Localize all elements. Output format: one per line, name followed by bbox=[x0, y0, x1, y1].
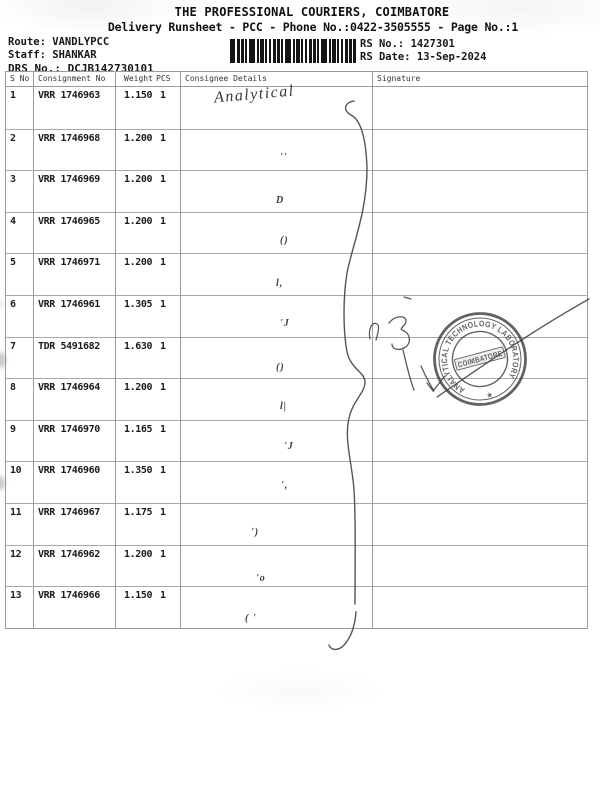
rs-date-label: RS Date: bbox=[360, 51, 411, 63]
cell-signature bbox=[373, 87, 587, 129]
cell-weight-pcs: 1.175 1 bbox=[116, 504, 181, 545]
column-header-pcs: PCS bbox=[154, 74, 170, 86]
cell-consignment-no: VRR 1746968 bbox=[34, 130, 116, 171]
cell-pcs: 1 bbox=[157, 590, 166, 628]
handwritten-ditto-mark: () bbox=[280, 235, 289, 246]
cell-pcs: 1 bbox=[157, 424, 166, 462]
page-title: THE PROFESSIONAL COURIERS, COIMBATORE bbox=[0, 5, 600, 19]
cell-sno: 7 bbox=[6, 338, 34, 379]
table-row: 1 VRR 1746963 1.150 1 bbox=[6, 87, 587, 129]
cell-signature bbox=[373, 254, 587, 295]
table-row: 9 VRR 1746970 1.165 1 'J bbox=[6, 420, 587, 462]
cell-consignment-no: VRR 1746971 bbox=[34, 254, 116, 295]
cell-pcs: 1 bbox=[157, 257, 166, 295]
cell-consignment-no: VRR 1746961 bbox=[34, 296, 116, 337]
rs-date-value: 13-Sep-2024 bbox=[417, 51, 487, 63]
cell-pcs: 1 bbox=[157, 382, 166, 420]
cell-signature bbox=[373, 421, 587, 462]
cell-weight: 1.630 bbox=[120, 341, 157, 379]
cell-consignee-details: 'J bbox=[181, 421, 373, 462]
cell-consignee-details: D bbox=[181, 171, 373, 212]
cell-signature bbox=[373, 296, 587, 337]
cell-consignee-details: 'o bbox=[181, 546, 373, 587]
cell-consignment-no: VRR 1746962 bbox=[34, 546, 116, 587]
cell-weight-pcs: 1.200 1 bbox=[116, 130, 181, 171]
handwritten-ditto-mark: 'J bbox=[284, 441, 294, 452]
cell-consignee-details: l| bbox=[181, 379, 373, 420]
rs-no-label: RS No.: bbox=[360, 38, 404, 50]
cell-weight: 1.175 bbox=[120, 507, 157, 545]
page-subtitle: Delivery Runsheet - PCC - Phone No.:0422… bbox=[0, 20, 600, 34]
cell-consignment-no: VRR 1746964 bbox=[34, 379, 116, 420]
route-label: Route: bbox=[8, 36, 46, 48]
cell-weight-pcs: 1.200 1 bbox=[116, 213, 181, 254]
staff-line: Staff: SHANKAR bbox=[8, 49, 154, 62]
cell-consignee-details: '' bbox=[181, 130, 373, 171]
cell-consignee-details: l, bbox=[181, 254, 373, 295]
cell-weight-pcs: 1.350 1 bbox=[116, 462, 181, 503]
cell-pcs: 1 bbox=[157, 465, 166, 503]
cell-signature bbox=[373, 338, 587, 379]
table-row: 8 VRR 1746964 1.200 1 l| bbox=[6, 378, 587, 420]
cell-pcs: 1 bbox=[157, 133, 166, 171]
barcode-icon bbox=[230, 39, 356, 63]
cell-pcs: 1 bbox=[157, 549, 166, 587]
cell-pcs: 1 bbox=[157, 174, 166, 212]
staff-label: Staff: bbox=[8, 49, 46, 61]
cell-consignee-details: ') bbox=[181, 504, 373, 545]
table-row: 12 VRR 1746962 1.200 1 'o bbox=[6, 545, 587, 587]
cell-weight: 1.350 bbox=[120, 465, 157, 503]
cell-sno: 13 bbox=[6, 587, 34, 628]
cell-weight: 1.200 bbox=[120, 382, 157, 420]
table-rows: 1 VRR 1746963 1.150 1 2 VRR 1746968 1.20… bbox=[6, 87, 587, 628]
handwritten-ditto-mark: 'J bbox=[280, 318, 290, 329]
route-value: VANDLYPCC bbox=[52, 36, 109, 48]
scanned-delivery-runsheet: THE PROFESSIONAL COURIERS, COIMBATORE De… bbox=[0, 0, 600, 800]
handwritten-ditto-mark: ') bbox=[251, 527, 259, 538]
cell-weight: 1.200 bbox=[120, 257, 157, 295]
cell-weight-pcs: 1.200 1 bbox=[116, 171, 181, 212]
cell-sno: 9 bbox=[6, 421, 34, 462]
cell-consignment-no: VRR 1746960 bbox=[34, 462, 116, 503]
cell-consignee-details: 'J bbox=[181, 296, 373, 337]
cell-weight-pcs: 1.305 1 bbox=[116, 296, 181, 337]
cell-weight: 1.200 bbox=[120, 549, 157, 587]
cell-weight: 1.150 bbox=[120, 90, 157, 129]
cell-sno: 12 bbox=[6, 546, 34, 587]
staff-value: SHANKAR bbox=[52, 49, 96, 61]
cell-pcs: 1 bbox=[157, 90, 166, 129]
cell-signature bbox=[373, 213, 587, 254]
scan-smudge bbox=[0, 300, 3, 308]
cell-weight: 1.200 bbox=[120, 174, 157, 212]
cell-weight-pcs: 1.200 1 bbox=[116, 254, 181, 295]
cell-signature bbox=[373, 379, 587, 420]
handwritten-ditto-mark: l, bbox=[276, 278, 283, 289]
cell-consignment-no: VRR 1746963 bbox=[34, 87, 116, 129]
cell-weight: 1.305 bbox=[120, 299, 157, 337]
cell-sno: 11 bbox=[6, 504, 34, 545]
cell-consignment-no: VRR 1746965 bbox=[34, 213, 116, 254]
cell-weight: 1.200 bbox=[120, 133, 157, 171]
table-row: 3 VRR 1746969 1.200 1 D bbox=[6, 170, 587, 212]
handwritten-ditto-mark: D bbox=[276, 195, 284, 206]
column-header-consignment: Consignment No bbox=[34, 72, 116, 86]
cell-signature bbox=[373, 171, 587, 212]
table-row: 13 VRR 1746966 1.150 1 ( ' bbox=[6, 586, 587, 628]
cell-signature bbox=[373, 587, 587, 628]
cell-weight-pcs: 1.150 1 bbox=[116, 87, 181, 129]
cell-sno: 1 bbox=[6, 87, 34, 129]
cell-sno: 10 bbox=[6, 462, 34, 503]
handwritten-ditto-mark: () bbox=[276, 362, 285, 373]
cell-consignment-no: VRR 1746967 bbox=[34, 504, 116, 545]
cell-weight: 1.165 bbox=[120, 424, 157, 462]
cell-signature bbox=[373, 504, 587, 545]
cell-weight-pcs: 1.200 1 bbox=[116, 546, 181, 587]
table-header-row: S No Consignment No Weight PCS Consignee… bbox=[6, 72, 587, 87]
cell-pcs: 1 bbox=[157, 216, 166, 254]
table-row: 10 VRR 1746960 1.350 1 ', bbox=[6, 461, 587, 503]
consignment-table: S No Consignment No Weight PCS Consignee… bbox=[5, 71, 588, 629]
cell-weight-pcs: 1.150 1 bbox=[116, 587, 181, 628]
column-header-weight: Weight bbox=[120, 74, 154, 86]
handwritten-ditto-mark: l| bbox=[280, 401, 287, 412]
cell-weight-pcs: 1.630 1 bbox=[116, 338, 181, 379]
cell-signature bbox=[373, 462, 587, 503]
cell-consignee-details: ( ' bbox=[181, 587, 373, 628]
handwritten-ditto-mark: ', bbox=[281, 480, 288, 491]
cell-consignment-no: TDR 5491682 bbox=[34, 338, 116, 379]
table-row: 2 VRR 1746968 1.200 1 '' bbox=[6, 129, 587, 171]
cell-consignment-no: VRR 1746966 bbox=[34, 587, 116, 628]
cell-consignee-details: () bbox=[181, 338, 373, 379]
route-line: Route: VANDLYPCC bbox=[8, 36, 154, 49]
cell-consignment-no: VRR 1746970 bbox=[34, 421, 116, 462]
cell-weight: 1.150 bbox=[120, 590, 157, 628]
rs-no-value: 1427301 bbox=[411, 38, 455, 50]
runsheet-info-right: RS No.: 1427301 RS Date: 13-Sep-2024 bbox=[360, 38, 486, 64]
column-header-weight-pcs: Weight PCS bbox=[116, 72, 181, 86]
cell-sno: 3 bbox=[6, 171, 34, 212]
cell-consignee-details: () bbox=[181, 213, 373, 254]
rs-date-line: RS Date: 13-Sep-2024 bbox=[360, 51, 486, 64]
table-row: 4 VRR 1746965 1.200 1 () bbox=[6, 212, 587, 254]
column-header-signature: Signature bbox=[373, 72, 587, 86]
column-header-sno: S No bbox=[6, 72, 34, 86]
cell-sno: 2 bbox=[6, 130, 34, 171]
cell-pcs: 1 bbox=[157, 507, 166, 545]
table-row: 7 TDR 5491682 1.630 1 () bbox=[6, 337, 587, 379]
rs-no-line: RS No.: 1427301 bbox=[360, 38, 486, 51]
cell-sno: 4 bbox=[6, 213, 34, 254]
cell-pcs: 1 bbox=[157, 341, 166, 379]
cell-sno: 8 bbox=[6, 379, 34, 420]
table-row: 5 VRR 1746971 1.200 1 l, bbox=[6, 253, 587, 295]
table-row: 11 VRR 1746967 1.175 1 ') bbox=[6, 503, 587, 545]
handwritten-ditto-mark: 'o bbox=[256, 573, 266, 584]
cell-sno: 5 bbox=[6, 254, 34, 295]
handwritten-ditto-mark: ( ' bbox=[245, 613, 257, 624]
table-row: 6 VRR 1746961 1.305 1 'J bbox=[6, 295, 587, 337]
cell-weight: 1.200 bbox=[120, 216, 157, 254]
cell-consignee-details: ', bbox=[181, 462, 373, 503]
cell-signature bbox=[373, 546, 587, 587]
cell-sno: 6 bbox=[6, 296, 34, 337]
cell-weight-pcs: 1.200 1 bbox=[116, 379, 181, 420]
cell-consignment-no: VRR 1746969 bbox=[34, 171, 116, 212]
handwritten-ditto-mark: '' bbox=[280, 152, 288, 163]
cell-pcs: 1 bbox=[157, 299, 166, 337]
cell-weight-pcs: 1.165 1 bbox=[116, 421, 181, 462]
runsheet-info-left: Route: VANDLYPCC Staff: SHANKAR DRS No.:… bbox=[8, 36, 154, 76]
cell-signature bbox=[373, 130, 587, 171]
